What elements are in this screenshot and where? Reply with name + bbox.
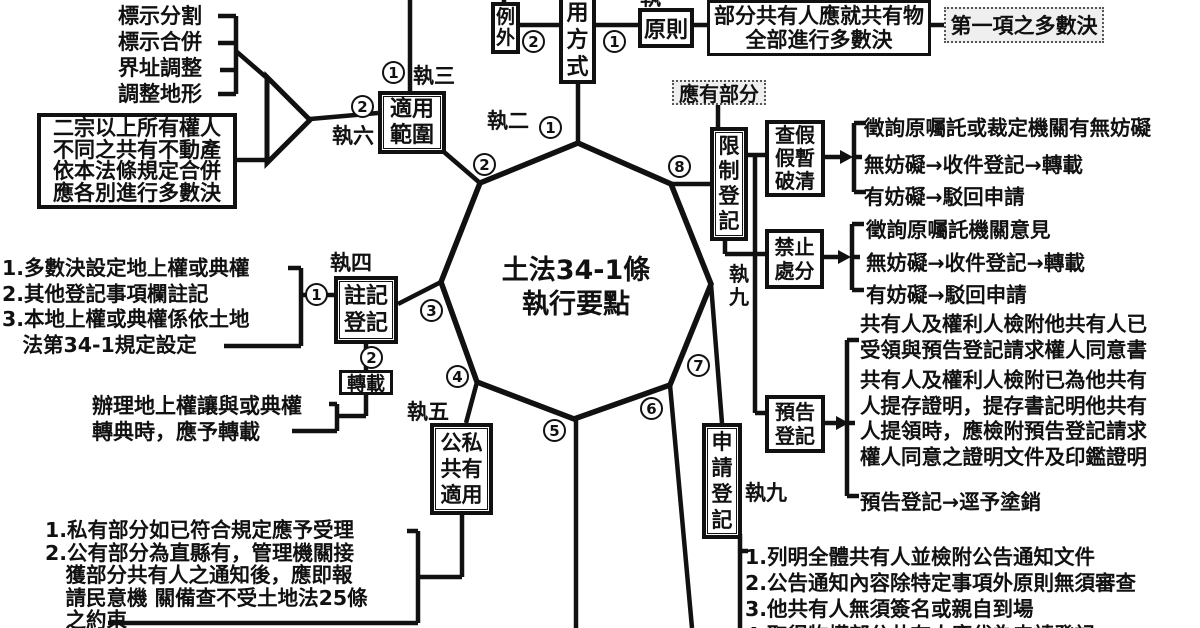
- octagon-number-2: 2: [473, 153, 496, 176]
- octagon-number-6: 6: [640, 397, 663, 420]
- restricted-registration-box: 限 制 登 記: [710, 127, 748, 241]
- list-item: 界址調整: [118, 55, 202, 81]
- principle-box: 原則: [638, 8, 694, 48]
- exec-label-zhi2: 執二: [487, 105, 529, 135]
- exec-label-zhi3: 執三: [413, 60, 455, 90]
- octagon-number-1: 1: [539, 116, 562, 139]
- seizure-branch-3: 有妨礙→駁回申請: [864, 180, 1025, 210]
- octagon-number-4: 4: [446, 365, 469, 388]
- first-item-majority-box: 第一項之多數決: [944, 7, 1104, 43]
- advance-branch-2: 共有人及權利人檢附已為他共有 人提存證明，提存書記明他共有 人提領時，應檢附預告…: [860, 368, 1147, 470]
- circled-scope-top: 1: [382, 61, 405, 84]
- prohibit-branch-2: 無妨礙→收件登記→轉載: [866, 246, 1085, 276]
- mindmap-diagram: 土法34-1條 執行要點 1 2 3 4 5 6 7 8 標示分割 標示合併 界…: [0, 0, 1200, 628]
- public-private-box: 公私 共有 適用: [430, 423, 493, 515]
- arrowhead-prohibit: [838, 250, 851, 264]
- prohibit-branch-3: 有妨礙→駁回申請: [866, 278, 1027, 308]
- usage-method-box: 適 用 方 式: [559, 0, 596, 84]
- circled-merge-link: 2: [351, 95, 374, 118]
- exec-label-zhi5: 執五: [407, 396, 449, 426]
- seizure-branch-1: 徵詢原囑託或裁定機關有無妨礙: [864, 111, 1151, 141]
- diagram-title: 土法34-1條 執行要點: [480, 254, 672, 322]
- circled-exception-link: 2: [522, 30, 545, 53]
- list-item: 標示分割: [118, 3, 202, 29]
- majority-on-whole-box: 部分共有人應就共有物 全部進行多數決: [707, 0, 931, 56]
- octagon-number-3: 3: [420, 299, 443, 322]
- exec-label-zhi9-application: 執九: [745, 477, 787, 507]
- public-private-note-list: 1.私有部分如已符合規定應予受理 2.公有部分為直縣有，管理機關接 獲部分共有人…: [45, 519, 368, 628]
- list-item: 標示合併: [118, 29, 202, 55]
- transcribe-caption: 辦理地上權讓與或典權 轉典時，應予轉載: [92, 393, 302, 445]
- seizure-branch-2: 無妨礙→收件登記→轉載: [864, 148, 1083, 178]
- prohibit-disposal-box: 禁止 處分: [765, 229, 824, 289]
- octagon-number-5: 5: [543, 419, 566, 442]
- cadastre-item-list: 標示分割 標示合併 界址調整 調整地形: [118, 3, 202, 107]
- seizure-types-box: 查假 假暫 破清: [765, 120, 825, 197]
- triangle-junction: [267, 77, 310, 163]
- merge-rule-box: 二宗以上所有權人 不同之共有不動產 依本法條規定合併 應各別進行多數決: [37, 113, 237, 209]
- annotation-registration-box: 註記 登記: [334, 276, 398, 344]
- exec-label-zhi9-restricted: 執 九: [729, 263, 749, 309]
- octagon-number-8: 8: [668, 155, 691, 178]
- exec-label-zhi4: 執四: [330, 247, 372, 277]
- octagon-number-7: 7: [687, 354, 710, 377]
- advance-branch-3: 預告登記→逕予塗銷: [860, 485, 1041, 515]
- advance-notice-registration-box: 預告 登記: [765, 395, 825, 453]
- transcribe-box: 轉載: [339, 370, 393, 395]
- list-item: 調整地形: [118, 81, 202, 107]
- circled-transcribe-link: 2: [360, 346, 383, 369]
- circled-annotation-link: 1: [305, 283, 328, 306]
- exception-box: 例 外: [491, 2, 520, 54]
- prohibit-branch-1: 徵詢原囑託機關意見: [866, 213, 1051, 243]
- share-portion-box: 應有部分: [672, 80, 766, 105]
- application-note-list: 1.列明全體共有人並檢附公告通知文件 2.公告通知內容除特定事項外原則無須審查 …: [745, 544, 1136, 628]
- arrowhead-seizure: [840, 150, 853, 164]
- scope-box: 適用 範圍: [378, 91, 446, 154]
- advance-branch-1: 共有人及權利人檢附他共有人已 受領與預告登記請求權人同意書: [860, 312, 1147, 363]
- annotation-note-list: 1.多數決設定地上權或典權 2.其他登記事項欄註記 3.本地上權或典權係依土地 …: [2, 256, 250, 358]
- application-registration-box: 申 請 登 記: [702, 423, 742, 539]
- circled-principle-link: 1: [603, 30, 626, 53]
- exec-label-zhi6: 執六: [332, 120, 374, 150]
